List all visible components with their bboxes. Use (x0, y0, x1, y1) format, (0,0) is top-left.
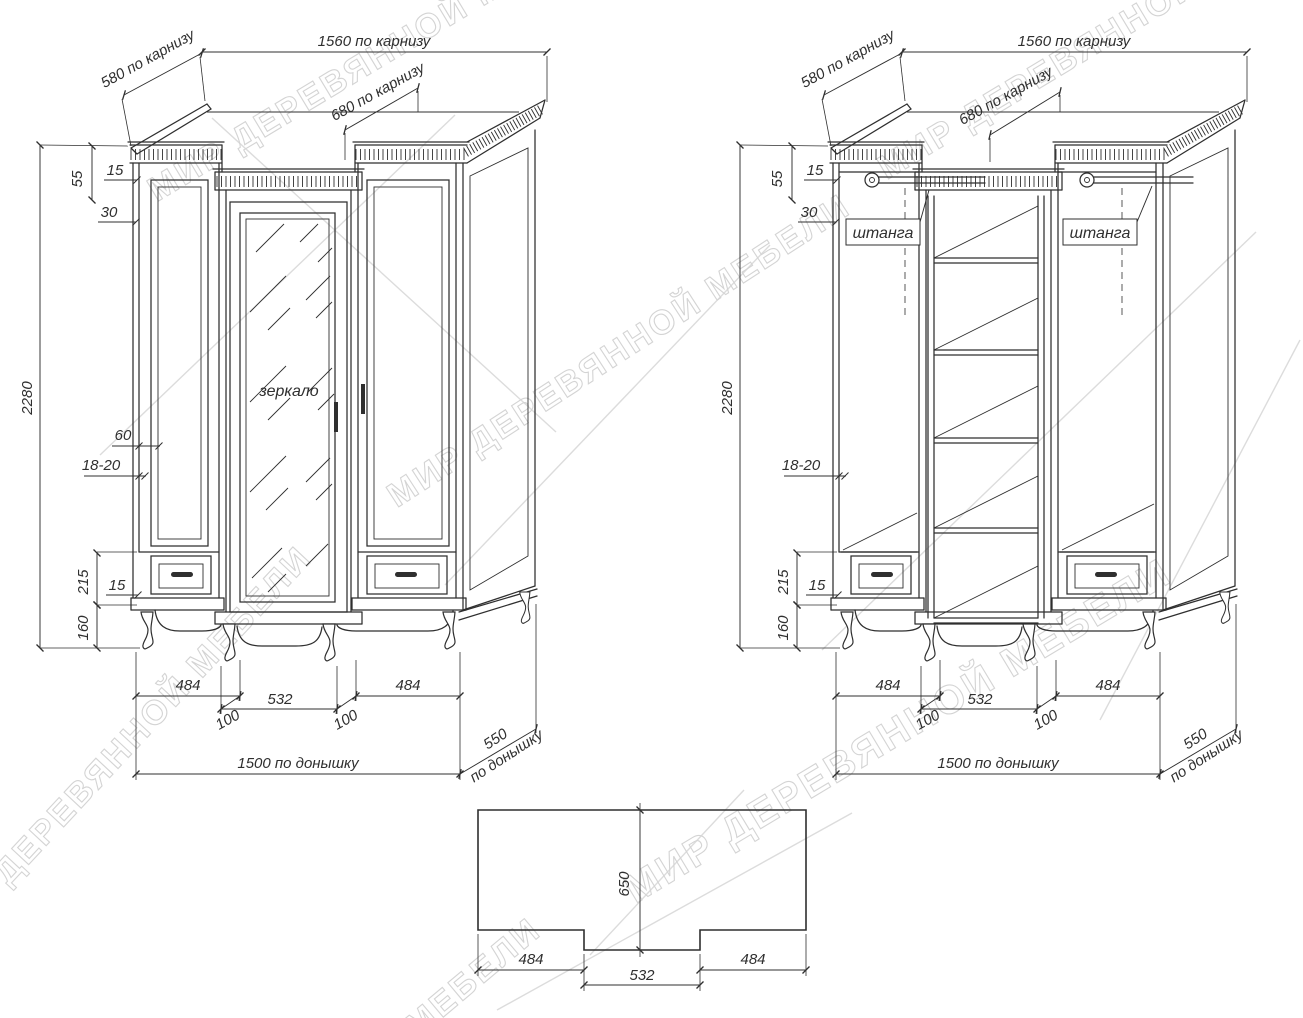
dim-height: 2280 (19, 381, 36, 416)
door-handle (361, 384, 365, 414)
dim-bottom-total: 1500 по донышку (937, 755, 1060, 772)
dim-cornice-d: 30 (801, 204, 818, 221)
dim-offset-l: 100 (213, 706, 244, 733)
dim-cornice-total: 1560 по карнизу (318, 33, 432, 50)
dim-cornice-h: 55 (69, 170, 86, 187)
dim-cornice-d: 30 (101, 204, 118, 221)
dim-plinth-h: 15 (109, 577, 126, 594)
blueprint-page: МИР ДЕРЕВЯННОЙ МЕБЕЛИ МИР ДЕРЕВЯННОЙ МЕБ… (0, 0, 1303, 1018)
dim-center-w: 532 (967, 691, 993, 708)
watermark-text: МИР ДЕРЕВЯННОЙ МЕБЕЛИ (616, 548, 1179, 911)
dim-side-r: 484 (395, 677, 420, 694)
interior: штанга штанга (839, 172, 1193, 623)
dim-offset-r: 100 (331, 706, 362, 733)
dim-drawer-h: 215 (75, 569, 92, 596)
dim-leg-h: 160 (75, 615, 92, 641)
watermark-text: МИР ДЕРЕВЯННОЙ МЕБЕЛИ (871, 0, 1303, 187)
dim-side-l: 484 (875, 677, 900, 694)
rod-label-left: штанга (853, 225, 914, 242)
rod-label-right: штанга (1070, 225, 1131, 242)
left-door-panel (151, 180, 208, 546)
dim-stile: 60 (115, 427, 132, 444)
dim-overhang: 15 (107, 162, 124, 179)
dim-offset-r: 100 (1031, 706, 1062, 733)
dim-cornice-h: 55 (769, 170, 786, 187)
dim-plan-center: 532 (629, 967, 655, 984)
watermark-text: МИР ДЕРЕВЯННОЙ МЕБЕЛИ (107, 909, 549, 1018)
dim-plan-depth: 650 (616, 871, 633, 897)
dim-side-r: 484 (1095, 677, 1120, 694)
shelf-column (928, 196, 1044, 623)
dim-bottom-total: 1500 по донышку (237, 755, 360, 772)
dim-leg-h: 160 (775, 615, 792, 641)
furniture-blueprint: МИР ДЕРЕВЯННОЙ МЕБЕЛИ МИР ДЕРЕВЯННОЙ МЕБ… (0, 0, 1303, 1018)
dim-plan-left: 484 (518, 951, 543, 968)
dim-plinth-h: 15 (809, 577, 826, 594)
dim-door-th: 18-20 (82, 457, 121, 474)
watermark-layer: МИР ДЕРЕВЯННОЙ МЕБЕЛИ МИР ДЕРЕВЯННОЙ МЕБ… (0, 0, 1303, 1018)
dim-door-th: 18-20 (782, 457, 821, 474)
dim-cornice-total: 1560 по карнизу (1018, 33, 1132, 50)
dim-center-w: 532 (267, 691, 293, 708)
mirror-glass-hatch (250, 224, 334, 592)
dim-height: 2280 (719, 381, 736, 416)
dim-plan-right: 484 (740, 951, 765, 968)
front-view-dimension-labels: 1560 по карнизу 580 по карнизу 680 по ка… (19, 26, 548, 787)
mirror-label: зеркало (258, 383, 318, 400)
dim-drawer-h: 215 (775, 569, 792, 596)
dim-overhang: 15 (807, 162, 824, 179)
door-handle (334, 402, 338, 432)
watermark-text: МИР ДЕРЕВЯННОЙ МЕБЕЛИ (141, 0, 628, 209)
dim-side-l: 484 (175, 677, 200, 694)
